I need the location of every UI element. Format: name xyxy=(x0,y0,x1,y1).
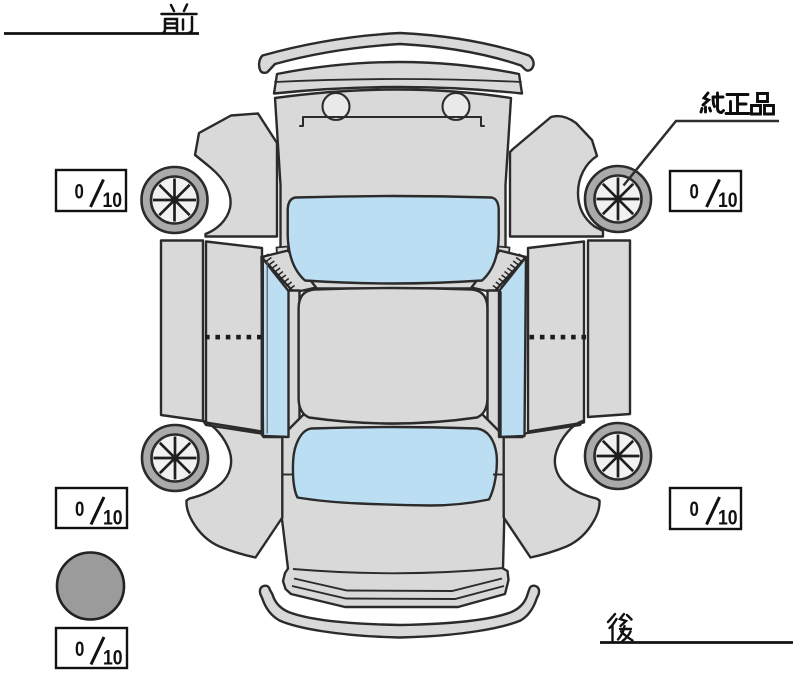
svg-text:0: 0 xyxy=(75,498,84,521)
svg-text:0: 0 xyxy=(75,181,84,204)
svg-text:0: 0 xyxy=(690,181,699,204)
svg-text:10: 10 xyxy=(718,506,738,530)
svg-text:10: 10 xyxy=(103,506,123,530)
svg-text:10: 10 xyxy=(103,188,123,212)
svg-text:0: 0 xyxy=(690,498,699,521)
svg-text:0: 0 xyxy=(75,638,84,661)
svg-text:10: 10 xyxy=(103,646,123,670)
svg-text:10: 10 xyxy=(718,188,738,212)
